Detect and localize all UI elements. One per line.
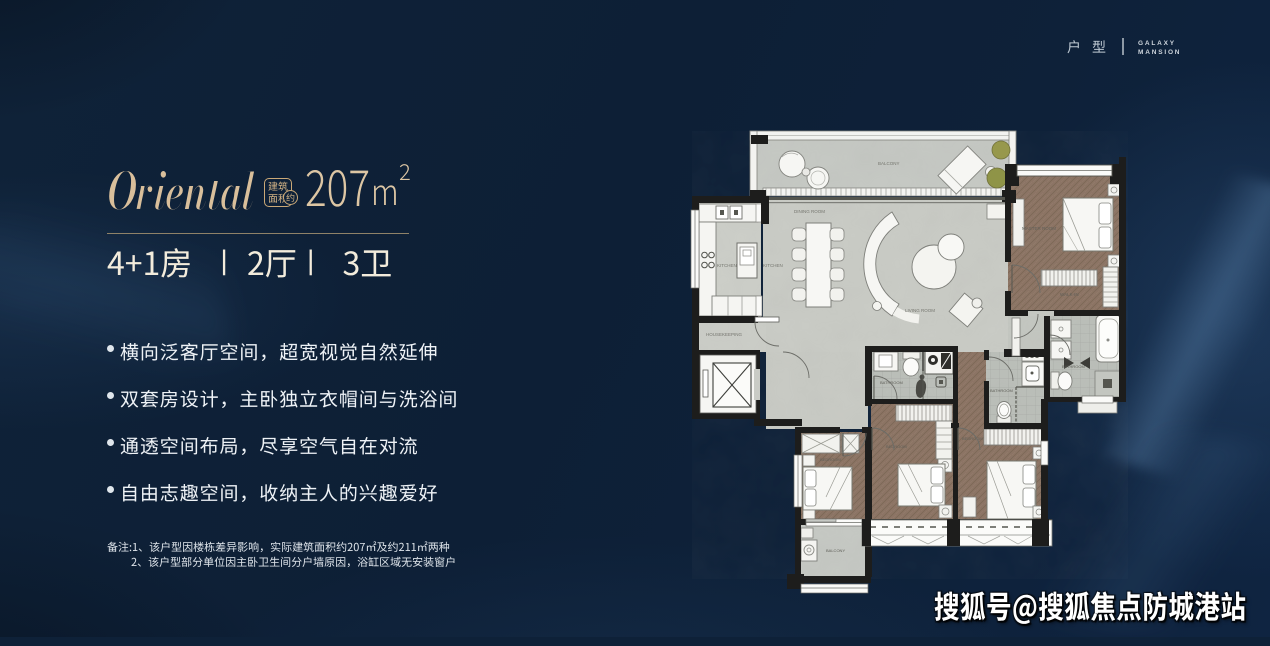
svg-text:WALK-IN: WALK-IN: [1060, 292, 1079, 297]
svg-text:BATHROOM: BATHROOM: [990, 388, 1013, 393]
svg-text:BEDROOM: BEDROOM: [886, 444, 907, 449]
svg-text:BEDROOM: BEDROOM: [820, 457, 841, 462]
svg-text:MASTER ROOM: MASTER ROOM: [1022, 226, 1056, 231]
svg-text:BALCONY: BALCONY: [826, 548, 845, 553]
svg-text:HOUSEKEEPING: HOUSEKEEPING: [706, 332, 743, 337]
svg-text:KITCHEN: KITCHEN: [763, 263, 783, 268]
svg-text:KITCHEN: KITCHEN: [717, 263, 737, 268]
svg-text:BATHROOM: BATHROOM: [1062, 364, 1085, 369]
svg-text:BALCONY: BALCONY: [878, 161, 900, 166]
svg-text:DINING ROOM: DINING ROOM: [794, 209, 825, 214]
svg-text:LIVING ROOM: LIVING ROOM: [905, 308, 935, 313]
svg-text:BEDROOM: BEDROOM: [962, 436, 983, 441]
